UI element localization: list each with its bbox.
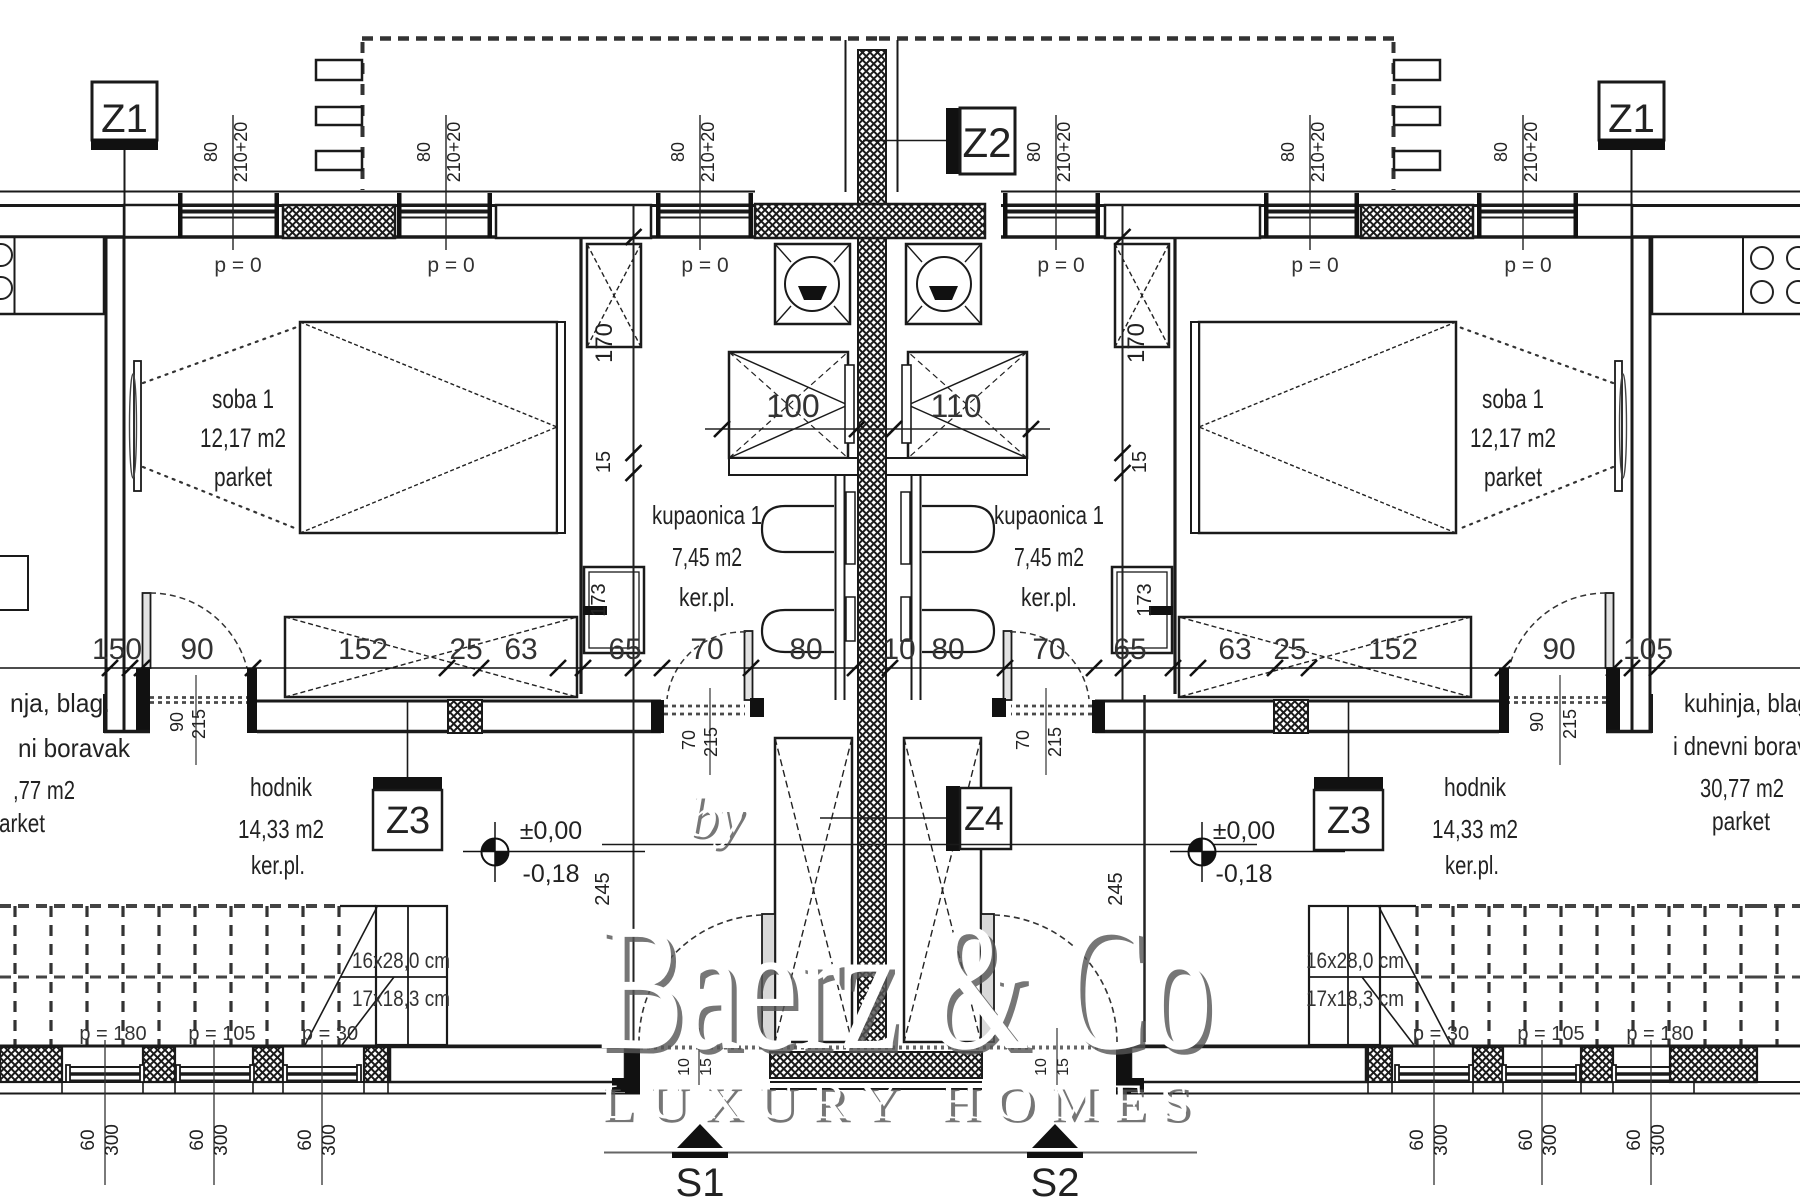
svg-text:100: 100 [766,388,819,424]
svg-text:210+20: 210+20 [698,122,718,183]
svg-text:kupaonica 1: kupaonica 1 [994,500,1104,530]
svg-text:210+20: 210+20 [1054,122,1074,183]
svg-text:17x18,3 cm: 17x18,3 cm [1306,986,1404,1011]
svg-text:soba 1: soba 1 [1482,384,1544,414]
svg-text:60: 60 [295,1129,316,1150]
svg-text:14,33 m2: 14,33 m2 [1432,814,1518,844]
svg-text:p = 0: p = 0 [681,254,728,277]
svg-text:90: 90 [180,633,213,666]
svg-text:p = 0: p = 0 [427,254,474,277]
svg-text:i dnevni boravak: i dnevni boravak [1673,731,1800,761]
svg-text:parket: parket [214,462,272,492]
svg-text:p = 180: p = 180 [1626,1023,1693,1045]
svg-text:hodnik: hodnik [250,772,313,802]
svg-text:S1: S1 [676,1161,725,1200]
svg-text:170: 170 [1123,323,1150,363]
svg-text:70: 70 [1032,633,1065,666]
svg-text:152: 152 [338,633,388,666]
svg-text:70: 70 [690,633,723,666]
svg-text:kupaonica 1: kupaonica 1 [652,500,762,530]
svg-text:7,45 m2: 7,45 m2 [672,542,742,572]
svg-text:7,45 m2: 7,45 m2 [1014,542,1084,572]
svg-text:80: 80 [414,142,434,162]
svg-text:25: 25 [449,633,482,666]
svg-text:12,17 m2: 12,17 m2 [200,423,286,453]
svg-text:15: 15 [593,451,615,473]
svg-text:60: 60 [78,1129,99,1150]
svg-text:12,17 m2: 12,17 m2 [1470,423,1556,453]
svg-text:150: 150 [92,633,142,666]
svg-text:215: 215 [1560,709,1580,739]
svg-text:p = 30: p = 30 [1413,1023,1469,1045]
svg-text:hodnik: hodnik [1444,772,1507,802]
svg-text:70: 70 [679,730,699,750]
svg-text:p = 105: p = 105 [188,1023,255,1045]
svg-text:p = 30: p = 30 [302,1023,358,1045]
svg-text:60: 60 [1624,1129,1645,1150]
svg-text:Z1: Z1 [101,97,148,141]
svg-text:80: 80 [201,142,221,162]
svg-text:p = 0: p = 0 [1504,254,1551,277]
svg-text:Z4: Z4 [964,800,1004,838]
svg-text:arket: arket [0,808,46,838]
svg-text:63: 63 [1218,633,1251,666]
svg-text:80: 80 [1278,142,1298,162]
svg-text:parket: parket [1484,462,1542,492]
svg-text:parket: parket [1712,806,1771,836]
svg-text:70: 70 [1013,730,1033,750]
svg-text:±0,00: ±0,00 [520,817,582,845]
svg-text:173: 173 [1134,583,1156,616]
svg-text:p = 0: p = 0 [214,254,261,277]
svg-text:p = 180: p = 180 [79,1023,146,1045]
svg-text:90: 90 [167,712,187,732]
svg-text:Z3: Z3 [1327,800,1371,842]
svg-text:nja, blag.: nja, blag. [10,688,110,718]
svg-text:105: 105 [1623,633,1673,666]
svg-text:14,33 m2: 14,33 m2 [238,814,324,844]
svg-text:Z3: Z3 [386,800,430,842]
svg-text:80: 80 [668,142,688,162]
svg-text:Baerz & Co: Baerz & Co [598,887,1212,1088]
svg-text:Z2: Z2 [962,119,1011,166]
svg-text:110: 110 [930,388,981,424]
svg-text:Z1: Z1 [1608,97,1655,141]
svg-text:215: 215 [701,727,721,757]
svg-text:90: 90 [1542,633,1575,666]
svg-text:210+20: 210+20 [231,122,251,183]
svg-text:90: 90 [1527,712,1547,732]
svg-text:210+20: 210+20 [1308,122,1328,183]
svg-text:25: 25 [1273,633,1306,666]
svg-text:170: 170 [591,323,618,363]
svg-text:173: 173 [588,583,610,616]
svg-text:-0,18: -0,18 [1216,860,1273,888]
svg-text:kuhinja, blag.: kuhinja, blag. [1684,688,1800,718]
svg-text:300: 300 [211,1124,232,1156]
svg-text:ker.pl.: ker.pl. [679,582,735,612]
svg-text:16x28,0 cm: 16x28,0 cm [352,948,450,973]
svg-text:300: 300 [1540,1124,1561,1156]
svg-text:210+20: 210+20 [444,122,464,183]
svg-text:65: 65 [608,633,641,666]
svg-text:60: 60 [1516,1129,1537,1150]
svg-text:60: 60 [1407,1129,1428,1150]
svg-text:63: 63 [504,633,537,666]
svg-text:10: 10 [882,633,915,666]
svg-text:215: 215 [189,709,209,739]
svg-text:80: 80 [789,633,822,666]
svg-text:,77 m2: ,77 m2 [13,775,75,805]
svg-text:ker.pl.: ker.pl. [1021,582,1077,612]
svg-text:80: 80 [1024,142,1044,162]
svg-text:300: 300 [1431,1124,1452,1156]
svg-text:ker.pl.: ker.pl. [1445,850,1499,880]
svg-text:p = 0: p = 0 [1037,254,1084,277]
svg-text:210+20: 210+20 [1521,122,1541,183]
svg-text:80: 80 [931,633,964,666]
svg-text:80: 80 [1491,142,1511,162]
svg-text:ker.pl.: ker.pl. [251,850,305,880]
svg-text:-0,18: -0,18 [523,860,580,888]
svg-text:±0,00: ±0,00 [1213,817,1275,845]
svg-text:65: 65 [1113,633,1146,666]
svg-text:LUXURY HOMES: LUXURY HOMES [600,1073,1205,1129]
svg-text:300: 300 [102,1124,123,1156]
svg-text:152: 152 [1368,633,1418,666]
svg-text:16x28,0 cm: 16x28,0 cm [1306,948,1404,973]
svg-text:p = 105: p = 105 [1517,1023,1584,1045]
svg-text:by: by [689,784,744,849]
svg-text:300: 300 [319,1124,340,1156]
svg-text:15: 15 [1129,451,1151,473]
svg-text:30,77 m2: 30,77 m2 [1700,773,1784,803]
svg-text:60: 60 [187,1129,208,1150]
svg-text:S2: S2 [1031,1161,1080,1200]
svg-text:300: 300 [1648,1124,1669,1156]
svg-text:ni boravak: ni boravak [18,733,131,763]
svg-text:17x18,3 cm: 17x18,3 cm [352,986,450,1011]
svg-text:p = 0: p = 0 [1291,254,1338,277]
svg-text:215: 215 [1045,727,1065,757]
svg-text:soba 1: soba 1 [212,384,274,414]
